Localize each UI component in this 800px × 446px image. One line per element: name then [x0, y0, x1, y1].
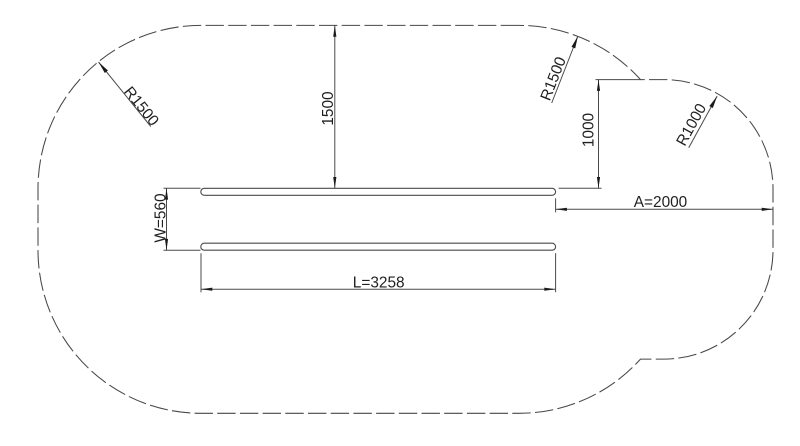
svg-text:L=3258: L=3258 — [353, 274, 405, 291]
svg-text:W=560: W=560 — [152, 193, 169, 242]
svg-text:1000: 1000 — [581, 113, 598, 147]
svg-text:A=2000: A=2000 — [634, 194, 688, 211]
svg-text:R1500: R1500 — [537, 55, 569, 103]
svg-text:1500: 1500 — [320, 91, 337, 125]
svg-text:R1500: R1500 — [120, 84, 162, 130]
svg-text:R1000: R1000 — [673, 101, 710, 149]
